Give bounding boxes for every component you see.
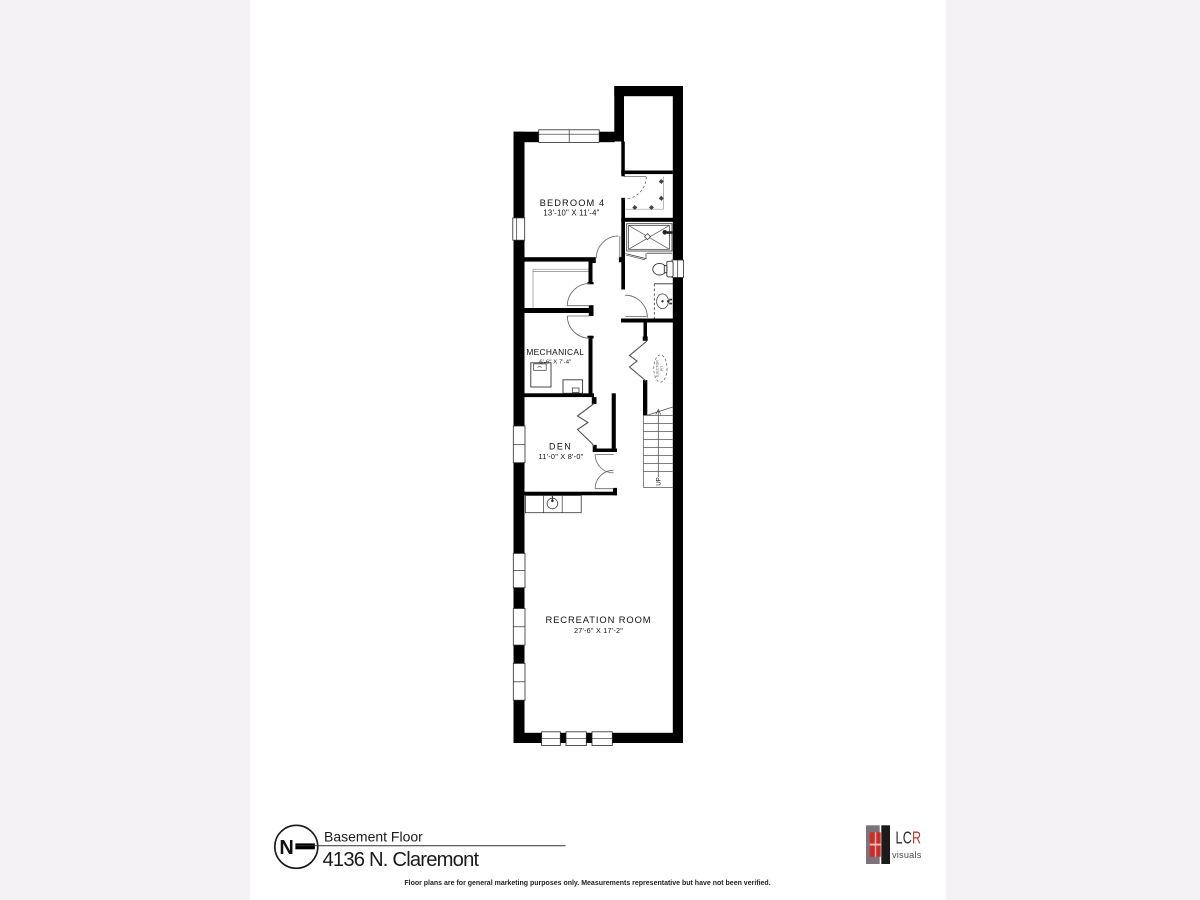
svg-text:EJECTOR: EJECTOR (656, 360, 660, 377)
svg-text:UP: UP (656, 477, 663, 486)
svg-text:6'-6" X 7'-4": 6'-6" X 7'-4" (539, 360, 571, 366)
svg-text:27'-6" X 17'-2": 27'-6" X 17'-2" (574, 626, 623, 635)
svg-text:Floor plans are for general ma: Floor plans are for general marketing pu… (404, 880, 770, 887)
svg-text:DEN: DEN (549, 442, 572, 452)
svg-text:RECREATION ROOM: RECREATION ROOM (545, 614, 651, 625)
svg-text:visuals: visuals (892, 850, 922, 860)
svg-text:N: N (279, 837, 293, 859)
svg-text:LCR: LCR (896, 828, 922, 847)
svg-text:4136 N. Claremont: 4136 N. Claremont (323, 849, 480, 871)
svg-text:Basement Floor: Basement Floor (324, 828, 423, 844)
svg-text:11'-0" X 8'-0": 11'-0" X 8'-0" (539, 452, 584, 461)
svg-text:PIT: PIT (660, 365, 664, 371)
svg-text:MECHANICAL: MECHANICAL (526, 347, 584, 357)
svg-text:BEDROOM 4: BEDROOM 4 (540, 198, 606, 208)
svg-text:13'-10" X 11'-4": 13'-10" X 11'-4" (543, 208, 599, 217)
